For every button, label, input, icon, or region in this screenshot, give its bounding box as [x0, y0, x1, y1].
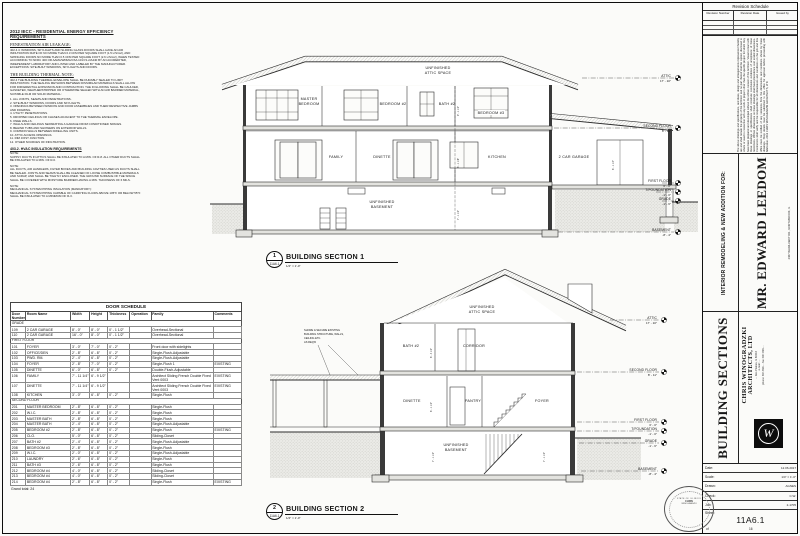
- level-elevation: -1' - 0": [648, 432, 657, 436]
- window: [256, 90, 298, 120]
- door-schedule-grand-total: Grand total: 24: [10, 487, 260, 491]
- ground-hatch: [212, 204, 243, 234]
- client-name: MR. EDWARD LEEDOM: [741, 155, 783, 311]
- sheet-label: Sheet:: [703, 510, 798, 515]
- dimension-label: 8' - 1 1/8": [457, 158, 460, 168]
- level-label: FIRST FLOOR: [648, 179, 671, 183]
- firm-name-2: ARCHITECTS, LTD: [748, 314, 754, 416]
- ground-hatch: [555, 190, 665, 232]
- window: [344, 90, 378, 120]
- architect-stamp: STATE OF ILLINOIS CHRIS WINOGRADZKI: [664, 486, 714, 532]
- client-block: INTERIOR REMODELING & NEW ADDITION FOR: …: [703, 154, 798, 312]
- notes-paragraph: NOTE: SUPPLY DUCTS IN ATTICS SHALL BE IN…: [10, 152, 141, 163]
- detail-sheet-ref: 11A6.1: [267, 513, 282, 520]
- level-elevation: 17' - 10": [646, 321, 657, 325]
- notes-paragraph: 402.4 THE BUILDING THERMAL ENVELOPE SHAL…: [10, 79, 141, 97]
- field-scale: Scale:1/4" = 1'-0": [703, 473, 798, 482]
- room-label: UNFINISHED: [425, 66, 450, 70]
- level-label: SECOND FLOOR: [629, 368, 657, 372]
- window: [420, 92, 434, 116]
- building-section-1-drawing: UNFINISHED ATTIC SPACE: [210, 28, 700, 273]
- notes-title: 2012 IECC - RESIDENTIAL ENERGY EFFICIENC…: [10, 29, 141, 39]
- notes-paragraph: 402.4.4: WINDOWS, SKYLIGHTS AND SLIDING …: [10, 49, 141, 70]
- revision-schedule: Revision Schedule Revision Number Revisi…: [703, 2, 798, 36]
- room-label: CORRIDOR: [463, 344, 485, 348]
- building-section-2-drawing: UNFINISHED ATTIC SPACE BATH #2 CORRIDOR …: [270, 266, 700, 518]
- room-label: FOYER: [535, 399, 549, 403]
- room-label: BEDROOM #2: [380, 102, 407, 106]
- titleblock-fields: Date:12.06.2017 Scale:1/4" = 1'-0" Drawn…: [703, 464, 798, 532]
- ground-hatch: [577, 438, 641, 480]
- detail-sheet-ref: 11A6.1: [267, 261, 282, 268]
- field-drawn: Drawn:AGNES: [703, 482, 798, 491]
- level-elevation: -8' - 4": [662, 233, 671, 237]
- section2-detail-bubble: 2 11A6.1: [266, 503, 283, 520]
- sliding-door: [275, 140, 322, 180]
- window: [450, 142, 478, 168]
- room-label: BEDROOM: [299, 102, 320, 106]
- section2-title: 2 11A6.1 BUILDING SECTION 2 1/4" = 1'-0": [266, 503, 398, 520]
- level-label: GRADE: [659, 197, 672, 201]
- project-label: INTERIOR REMODELING & NEW ADDITION FOR:: [711, 155, 737, 311]
- firm-name: CHRIS WINOGRADZKI: [741, 314, 748, 416]
- notes-paragraph: NOTE: MECHANICAL SYSTEM PIPING INSULATIO…: [10, 185, 141, 199]
- level-label: GRADE: [645, 439, 658, 443]
- revision-schedule-title: Revision Schedule: [703, 2, 798, 10]
- door-schedule: DOOR SCHEDULE Door NumberRoom Name Width…: [10, 302, 260, 491]
- detail-number: 2: [267, 504, 282, 513]
- room-label: UNFINISHED: [469, 305, 494, 309]
- level-label: BASEMENT: [638, 467, 657, 471]
- room-label: DINETTE: [373, 155, 391, 159]
- section1-detail-bubble: 1 11A6.1: [266, 251, 283, 268]
- firm-block: CHRIS WINOGRADZKI ARCHITECTS, LTD ... De…: [741, 314, 787, 416]
- disclaimer-block: The above drawings and specifications, a…: [703, 36, 798, 154]
- room-label: BATH #2: [439, 102, 455, 106]
- room-label: BEDROOM #3: [478, 111, 505, 115]
- level-label: ATTIC: [661, 74, 671, 78]
- section2-scale: 1/4" = 1'-0": [285, 516, 398, 520]
- room-label: MASTER: [301, 97, 318, 101]
- sheet-of-label: of: [706, 527, 709, 531]
- sheet-number-box: Sheet: 11A6.1 of 16: [703, 510, 798, 532]
- level-label: T/FOUNDATION: [631, 427, 657, 431]
- sliding-door: [393, 140, 438, 180]
- energy-code-notes: 2012 IECC - RESIDENTIAL ENERGY EFFICIENC…: [10, 29, 141, 201]
- field-job: Job:2-1705: [703, 501, 798, 510]
- room-label: FAMILY: [329, 155, 344, 159]
- notes-heading-thermal: THE BUILDING THERMAL NOTE:: [10, 72, 141, 77]
- door-schedule-row: 214BEDROOM #42' - 8"6' - 8"0' - 2"Single…: [11, 479, 242, 485]
- dimension-label: 8' - 4 1/2": [430, 348, 433, 358]
- level-elevation: -1' - 6": [648, 444, 657, 448]
- annotation-line: BUILDING STRUCTURE, WALLS,: [304, 332, 344, 336]
- level-elevation: -8' - 4": [648, 472, 657, 476]
- field-check: Check:C.W.: [703, 492, 798, 501]
- drawing-title-block: BUILDING SECTIONS CHRIS WINOGRADZKI ARCH…: [703, 312, 798, 464]
- level-label: ATTIC: [647, 316, 657, 320]
- room-label: DINETTE: [403, 399, 421, 403]
- dimension-label: 9' - 1 1/2": [457, 106, 460, 116]
- room-label: ATTIC SPACE: [425, 71, 452, 75]
- room-label: PANTRY: [465, 399, 481, 403]
- section1-title: 1 11A6.1 BUILDING SECTION 1 1/4" = 1'-0": [266, 251, 398, 268]
- sheet-count: 16: [749, 527, 753, 531]
- firm-logo-icon: W: [754, 419, 783, 448]
- level-label: SECOND FLOOR: [643, 124, 671, 128]
- room-label: BASEMENT: [371, 205, 394, 209]
- level-elevation: -1' - 6": [662, 202, 671, 206]
- revision-schedule-header: Revision Number Revision Date Issued by: [703, 10, 798, 21]
- dimension-label: 7' - 1 1/2": [432, 452, 435, 462]
- drawing-title: BUILDING SECTIONS: [709, 314, 737, 462]
- level-elevation: 8' - 11": [648, 373, 657, 377]
- section1-title-text: BUILDING SECTION 1: [285, 251, 398, 263]
- door-schedule-row: 107DINETTE7' - 11 1/4"6' - 9 1/2"Archite…: [11, 383, 242, 393]
- room-label: KITCHEN: [488, 155, 506, 159]
- dimension-label: 7' - 1 1/2": [457, 210, 460, 220]
- revision-row: [703, 30, 798, 35]
- drawing-sheet: 2012 IECC - RESIDENTIAL ENERGY EFFICIENC…: [0, 0, 800, 536]
- annotation-line: SHORE & SECURE EXISTING: [304, 328, 340, 332]
- notes-heading-hvac: 403.2. HVAC INSULATION REQUIREMENTS: [10, 147, 141, 151]
- section2-title-text: BUILDING SECTION 2: [285, 503, 398, 515]
- room-label: ATTIC SPACE: [469, 310, 496, 314]
- level-label: BASEMENT: [652, 228, 671, 232]
- room-label: 2 CAR GARAGE: [559, 155, 590, 159]
- notes-list: 1. ALL JOINTS, SEAMS AND PENETRATIONS. 2…: [10, 98, 141, 144]
- firm-contact: phone: 847-699-... fax: 847-699-...: [762, 314, 765, 416]
- section1-scale: 1/4" = 1'-0": [285, 264, 398, 268]
- dimension-label: 7' - 1 1/2": [543, 452, 546, 462]
- ground-hatch: [270, 432, 380, 478]
- notes-heading-fenestration: FENESTRATION AIR LEAKAGE:: [10, 42, 141, 47]
- level-label: T/FOUNDATION: [645, 188, 671, 192]
- notes-paragraph: NOTE: ALL DUCTS, AIR HANDLERS, FILTER BO…: [10, 165, 141, 183]
- door-schedule-header: Door NumberRoom Name WidthHeight Thickne…: [11, 311, 242, 321]
- titleblock: Revision Schedule Revision Number Revisi…: [702, 2, 798, 534]
- level-elevation: 8' - 11": [662, 129, 671, 133]
- door-schedule-row: 106FAMILY7' - 11 1/4"6' - 9 1/2"Architec…: [11, 373, 242, 383]
- client-address: 2467 WHIRLAWAY DR., NORTHBROOK, IL: [785, 155, 794, 311]
- sheet-number: 11A6.1: [703, 515, 798, 525]
- room-label: UNFINISHED: [443, 443, 468, 447]
- level-elevation: 17' - 10": [660, 79, 671, 83]
- level-label: FIRST FLOOR: [634, 418, 657, 422]
- disclaimer-text: The above drawings and specifications, a…: [737, 38, 793, 152]
- dimension-label: 8' - 1 1/4": [612, 160, 615, 170]
- detail-number: 1: [267, 252, 282, 261]
- room-label: UNFINISHED: [369, 200, 394, 204]
- dimension-label: 8' - 1 1/2": [430, 402, 433, 412]
- annotation-line: CEILING ETC.: [304, 336, 321, 340]
- field-date: Date:12.06.2017: [703, 464, 798, 473]
- room-label: BATH #2: [403, 344, 419, 348]
- door-schedule-title: DOOR SCHEDULE: [11, 303, 242, 312]
- annotation-line: AS REQ'D: [304, 340, 316, 344]
- room-label: BASEMENT: [445, 448, 468, 452]
